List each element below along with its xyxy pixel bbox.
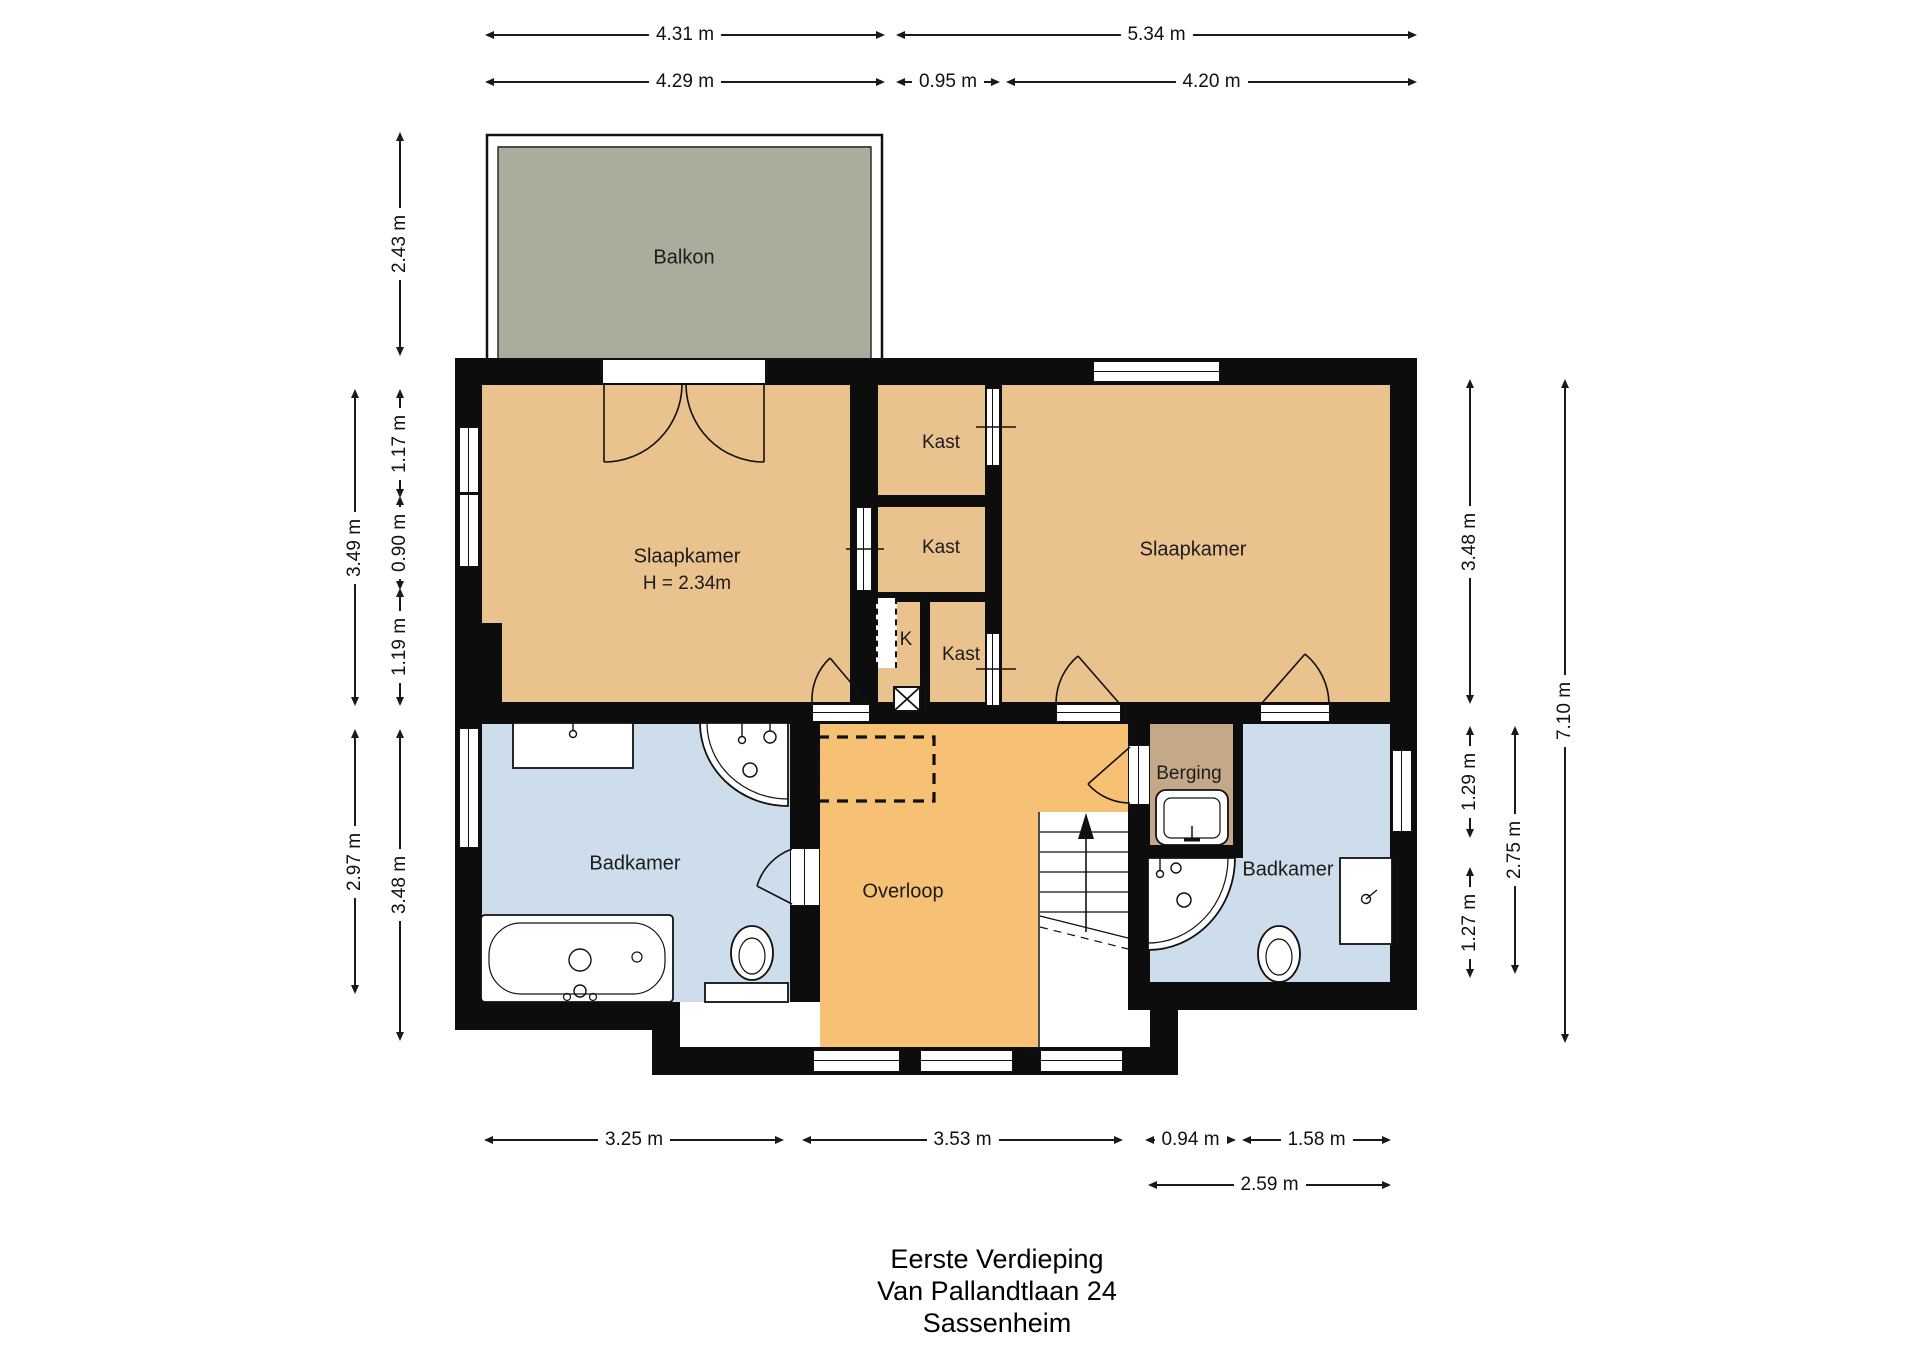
wall-berging-right [1233, 724, 1243, 858]
dim-right-2-75: 2.75 m [1508, 727, 1522, 973]
dim-bottom-3-53: 3.53 m [803, 1133, 1122, 1147]
dim-label: 0.94 m [1154, 1129, 1226, 1151]
dim-label: 2.97 m [344, 825, 366, 897]
dim-right-7-10: 7.10 m [1558, 380, 1572, 1042]
wall-pilaster [482, 623, 502, 703]
window-left-lower [459, 728, 479, 848]
dim-label: 0.90 m [389, 507, 411, 579]
dim-left-3-48: 3.48 m [393, 730, 407, 1040]
dim-top-4-31: 4.31 m [486, 28, 884, 42]
sliding-door-kast-top [986, 388, 1000, 466]
window-left-upper-mullion [459, 492, 479, 495]
stairwell [1038, 812, 1128, 1047]
dim-top-5-34: 5.34 m [897, 28, 1416, 42]
dim-label: 3.48 m [389, 849, 411, 921]
dim-bottom-2-59: 2.59 m [1149, 1178, 1390, 1192]
window-bottom-1 [813, 1050, 900, 1072]
duct-x-symbol [893, 686, 921, 712]
dim-left-1-19: 1.19 m [393, 589, 407, 705]
dim-label: 3.25 m [598, 1129, 670, 1151]
room-label-kast-top: Kast [922, 432, 960, 454]
dim-top-0-95: 0.95 m [897, 75, 999, 89]
door-threshold-berging [1128, 745, 1150, 805]
dim-label: 2.43 m [389, 208, 411, 280]
dim-label: 1.27 m [1459, 886, 1481, 958]
room-label-slaapkamer-right: Slaapkamer [1140, 539, 1247, 562]
dim-label: 2.75 m [1504, 814, 1526, 886]
plan-title-block: Eerste Verdieping Van Pallandtlaan 24 Sa… [877, 1243, 1117, 1339]
window-top [1093, 361, 1220, 382]
room-label-overloop: Overloop [862, 881, 943, 904]
dim-left-3-49: 3.49 m [348, 390, 362, 705]
room-label-slaapkamer-left-height: H = 2.34m [643, 573, 731, 595]
door-threshold-slaapkamer-right-2 [1260, 704, 1330, 722]
window-bottom-2 [920, 1050, 1013, 1072]
window-left-upper [459, 427, 479, 567]
plan-title-city: Sassenheim [877, 1307, 1117, 1339]
dim-label: 3.49 m [344, 511, 366, 583]
room-label-kast-bottom: Kast [942, 644, 980, 666]
dim-left-1-17: 1.17 m [393, 390, 407, 497]
dim-top-4-29: 4.29 m [486, 75, 884, 89]
sliding-door-kast-bottom [986, 633, 1000, 706]
room-label-balkon: Balkon [653, 247, 714, 270]
door-threshold-badkamer-left [790, 848, 820, 906]
room-label-berging: Berging [1156, 763, 1222, 785]
dim-bottom-3-25: 3.25 m [485, 1133, 783, 1147]
dim-bottom-1-58: 1.58 m [1243, 1133, 1390, 1147]
plan-title-address: Van Pallandtlaan 24 [877, 1275, 1117, 1307]
sliding-door-kast-mid [856, 507, 872, 591]
dim-label: 7.10 m [1554, 675, 1576, 747]
door-threshold-slaapkamer-left [812, 704, 870, 722]
wall-k-kast [920, 592, 930, 702]
dim-left-2-97: 2.97 m [348, 730, 362, 993]
room-label-slaapkamer-left: Slaapkamer [634, 546, 741, 569]
balcony-door-opening [600, 360, 768, 383]
plan-title-floor: Eerste Verdieping [877, 1243, 1117, 1275]
k-shaft-dashed-opening [876, 598, 897, 668]
dim-right-3-48: 3.48 m [1463, 380, 1477, 703]
dim-top-4-20: 4.20 m [1007, 75, 1416, 89]
wall-right [1390, 358, 1417, 1010]
slaapkamer-left-floor [482, 385, 850, 702]
dim-label: 4.29 m [649, 71, 721, 93]
room-label-badkamer-left: Badkamer [589, 853, 680, 876]
wall-kast-divider-1 [850, 495, 1002, 507]
dim-label: 3.48 m [1459, 505, 1481, 577]
dim-label: 2.59 m [1233, 1174, 1305, 1196]
wall-bottom-badkamer-right [1150, 982, 1417, 1010]
dim-label: 3.53 m [926, 1129, 998, 1151]
dim-right-1-29: 1.29 m [1463, 727, 1477, 837]
dim-label: 1.58 m [1280, 1129, 1352, 1151]
dim-right-1-27: 1.27 m [1463, 868, 1477, 977]
dim-label: 5.34 m [1120, 24, 1192, 46]
dim-label: 1.17 m [389, 407, 411, 479]
wall-bottom-badkamer-left [455, 1002, 680, 1030]
floor-plan: Balkon Slaapkamer H = 2.34m Kast Kast K … [0, 0, 1920, 1358]
dim-label: 1.29 m [1459, 746, 1481, 818]
room-label-badkamer-right: Badkamer [1242, 859, 1333, 882]
dim-label: 0.95 m [912, 71, 984, 93]
door-threshold-slaapkamer-right-1 [1056, 704, 1121, 722]
dim-left-2-43: 2.43 m [393, 133, 407, 355]
dim-label: 1.19 m [389, 611, 411, 683]
dim-label: 4.31 m [649, 24, 721, 46]
wall-berging-bottom [1128, 845, 1243, 858]
dim-label: 4.20 m [1175, 71, 1247, 93]
room-label-kast-mid: Kast [922, 537, 960, 559]
dim-left-0-90: 0.90 m [393, 497, 407, 589]
dim-bottom-0-94: 0.94 m [1146, 1133, 1235, 1147]
room-label-k-shaft: K [900, 629, 913, 651]
window-bottom-3 [1040, 1050, 1123, 1072]
window-right [1392, 750, 1412, 832]
